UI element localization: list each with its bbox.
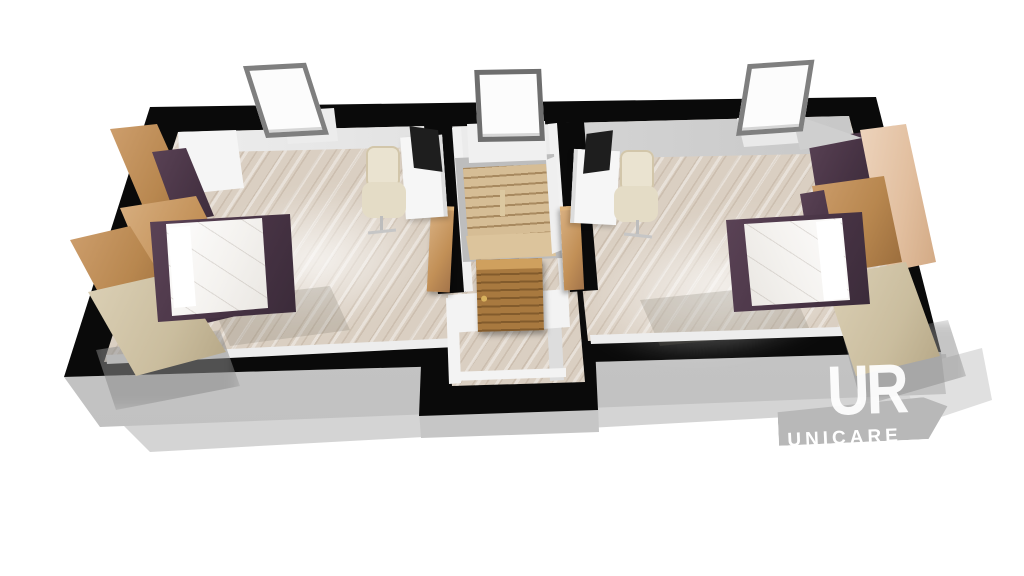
stairwell: [452, 150, 567, 268]
watermark-subtext: UNICARE: [787, 426, 902, 450]
right-bed-pillows: [810, 212, 855, 307]
stair-newel-post: [500, 190, 505, 216]
right-chair-seat: [614, 186, 658, 222]
watermark-logo: UR: [826, 353, 907, 426]
left-bed-pillows: [162, 222, 204, 314]
left-chair-feet: [368, 229, 396, 235]
floorplan-render: UR UNICARE: [0, 0, 1024, 576]
middle-roof-window: [474, 69, 545, 142]
left-chair-seat: [362, 182, 406, 218]
closed-door: [476, 258, 544, 332]
right-chair-feet: [624, 233, 652, 239]
right-chair: [606, 146, 662, 242]
left-chair: [360, 142, 416, 238]
door-handle: [481, 296, 487, 302]
right-roof-window: [736, 60, 814, 136]
open-door-left: [427, 205, 454, 292]
